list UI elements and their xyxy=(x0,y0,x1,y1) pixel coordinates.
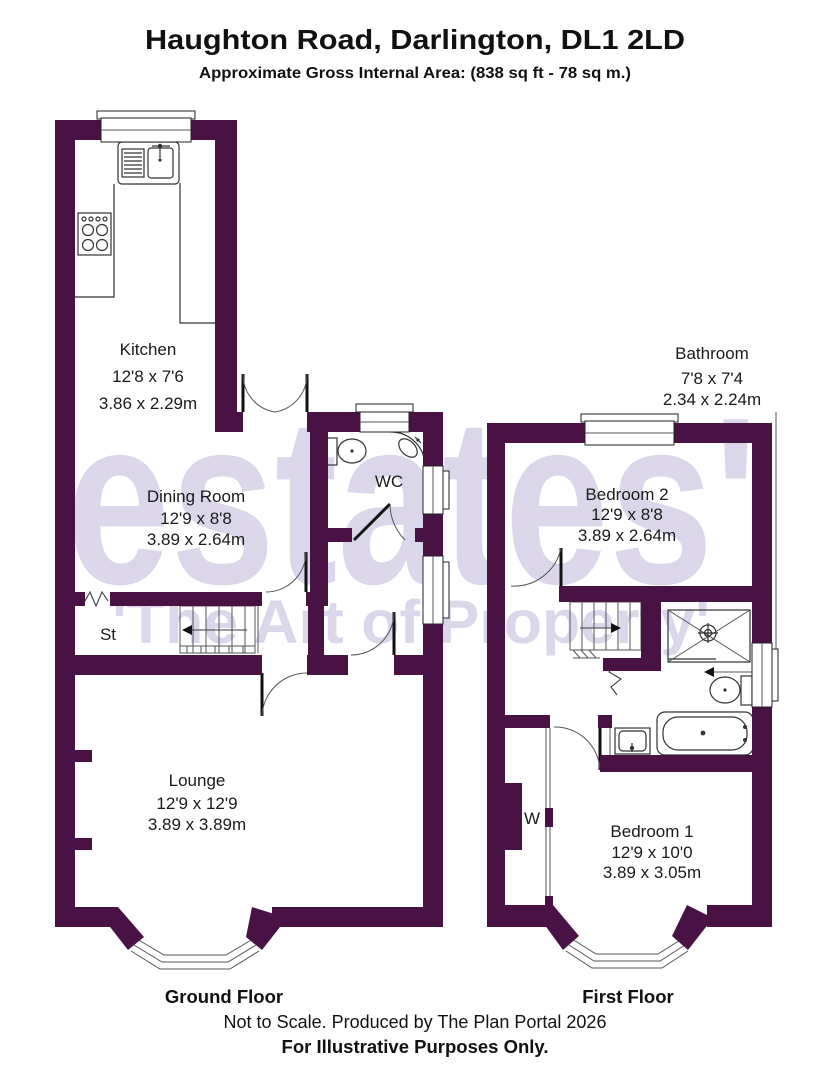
first-floor-caption: First Floor xyxy=(582,986,673,1007)
bathroom-toilet xyxy=(710,676,752,705)
first-floor-plan: Bathroom 7'8 x 7'4 2.34 x 2.24m Bedroom … xyxy=(487,344,778,968)
bedroom1-size-imperial: 12'9 x 10'0 xyxy=(611,843,692,862)
bathroom-basin xyxy=(615,728,650,754)
wc-label: WC xyxy=(375,472,403,491)
header: Haughton Road, Darlington, DL1 2LD Appro… xyxy=(145,24,685,82)
footer-note: Not to Scale. Produced by The Plan Porta… xyxy=(224,1012,607,1032)
footer: Ground Floor First Floor Not to Scale. P… xyxy=(165,986,674,1057)
dining-size-metric: 3.89 x 2.64m xyxy=(147,530,245,549)
first-bay-window xyxy=(566,939,688,968)
floorplan-page: estates' 'The Art of Property' xyxy=(0,0,830,1080)
footer-disclaimer: For Illustrative Purposes Only. xyxy=(282,1036,549,1057)
bedroom1-size-metric: 3.89 x 3.05m xyxy=(603,863,701,882)
kitchen-counter-left xyxy=(75,184,114,297)
bedroom1-label: Bedroom 1 xyxy=(610,822,693,841)
page-subtitle: Approximate Gross Internal Area: (838 sq… xyxy=(199,65,631,82)
wardrobe-label: W xyxy=(524,809,540,828)
ground-bay-window xyxy=(131,939,259,969)
page-title: Haughton Road, Darlington, DL1 2LD xyxy=(145,24,685,55)
kitchen-sink-unit xyxy=(118,142,179,184)
kitchen-label: Kitchen xyxy=(120,340,177,359)
bedroom2-size-imperial: 12'9 x 8'8 xyxy=(591,505,663,524)
bathroom-label: Bathroom xyxy=(675,344,749,363)
kitchen-hob xyxy=(78,213,111,255)
dining-label: Dining Room xyxy=(147,487,245,506)
bath xyxy=(657,712,753,755)
kitchen-size-imperial: 12'8 x 7'6 xyxy=(112,367,184,386)
bathroom-size-imperial: 7'8 x 7'4 xyxy=(681,369,743,388)
lounge-door xyxy=(262,673,307,716)
bedroom1-door xyxy=(554,727,600,770)
kitchen-counter-right xyxy=(180,183,215,323)
ground-floor-caption: Ground Floor xyxy=(165,986,283,1007)
bedroom2-label: Bedroom 2 xyxy=(585,485,668,504)
bedroom2-size-metric: 3.89 x 2.64m xyxy=(578,526,676,545)
lounge-size-imperial: 12'9 x 12'9 xyxy=(156,794,237,813)
kitchen-size-metric: 3.86 x 2.29m xyxy=(99,394,197,413)
lounge-label: Lounge xyxy=(169,771,226,790)
store-label: St xyxy=(100,625,116,644)
dining-size-imperial: 12'9 x 8'8 xyxy=(160,509,232,528)
lounge-size-metric: 3.89 x 3.89m xyxy=(148,815,246,834)
bathroom-size-metric: 2.34 x 2.24m xyxy=(663,390,761,409)
